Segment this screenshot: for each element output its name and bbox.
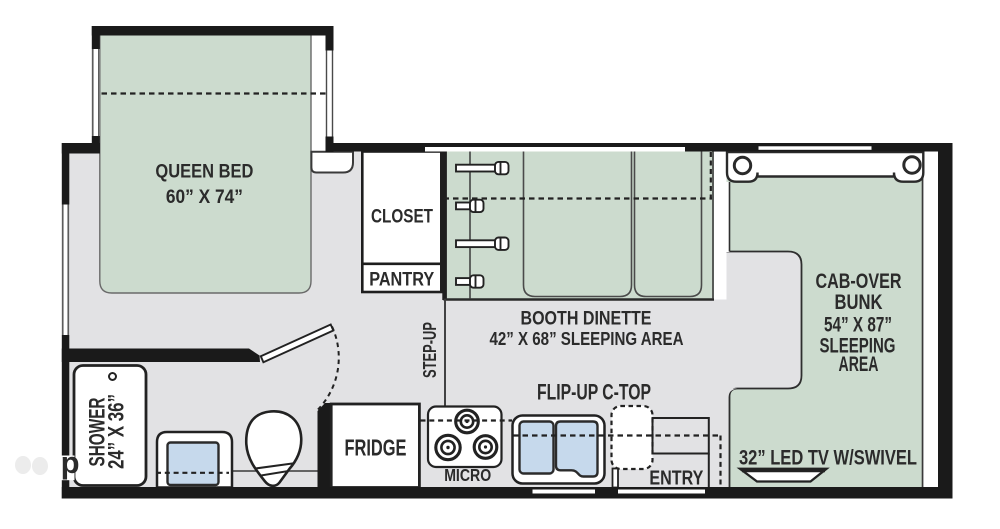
- svg-text:ENTRY: ENTRY: [649, 467, 704, 489]
- svg-text:QUEEN BED: QUEEN BED: [155, 161, 253, 182]
- svg-text:CLOSET: CLOSET: [371, 207, 433, 228]
- svg-text:FRIDGE: FRIDGE: [345, 435, 407, 461]
- svg-text:BUNK: BUNK: [835, 291, 883, 314]
- svg-text:60” X 74”: 60” X 74”: [166, 187, 243, 208]
- svg-text:p: p: [61, 445, 80, 480]
- svg-text:MICRO: MICRO: [444, 465, 491, 485]
- svg-text:CAB-OVER: CAB-OVER: [816, 270, 902, 293]
- svg-text:32” LED TV W/SWIVEL: 32” LED TV W/SWIVEL: [739, 445, 917, 469]
- svg-text:54” X 87”: 54” X 87”: [824, 314, 892, 337]
- svg-text:FLIP-UP C-TOP: FLIP-UP C-TOP: [537, 380, 651, 405]
- svg-text:42” X 68” SLEEPING AREA: 42” X 68” SLEEPING AREA: [490, 328, 684, 349]
- svg-text:STEP-UP: STEP-UP: [420, 322, 440, 378]
- svg-text:AREA: AREA: [839, 353, 879, 376]
- svg-text:PANTRY: PANTRY: [369, 270, 434, 291]
- svg-text:24” X 36”: 24” X 36”: [104, 394, 129, 469]
- svg-text:BOOTH DINETTE: BOOTH DINETTE: [521, 307, 652, 329]
